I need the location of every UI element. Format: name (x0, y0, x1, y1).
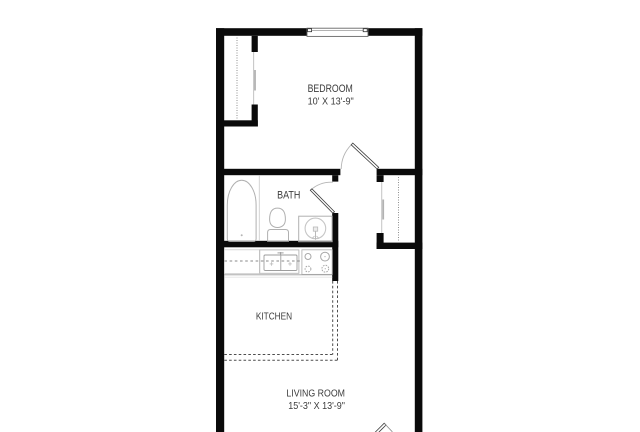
svg-text:10' X 13'-9": 10' X 13'-9" (308, 97, 354, 108)
svg-text:BEDROOM: BEDROOM (308, 83, 353, 95)
svg-text:LIVING ROOM: LIVING ROOM (286, 387, 345, 399)
svg-text:15'-3" X 13'-9": 15'-3" X 13'-9" (288, 401, 345, 412)
svg-text:BATH: BATH (277, 190, 300, 202)
svg-text:KITCHEN: KITCHEN (256, 311, 292, 323)
